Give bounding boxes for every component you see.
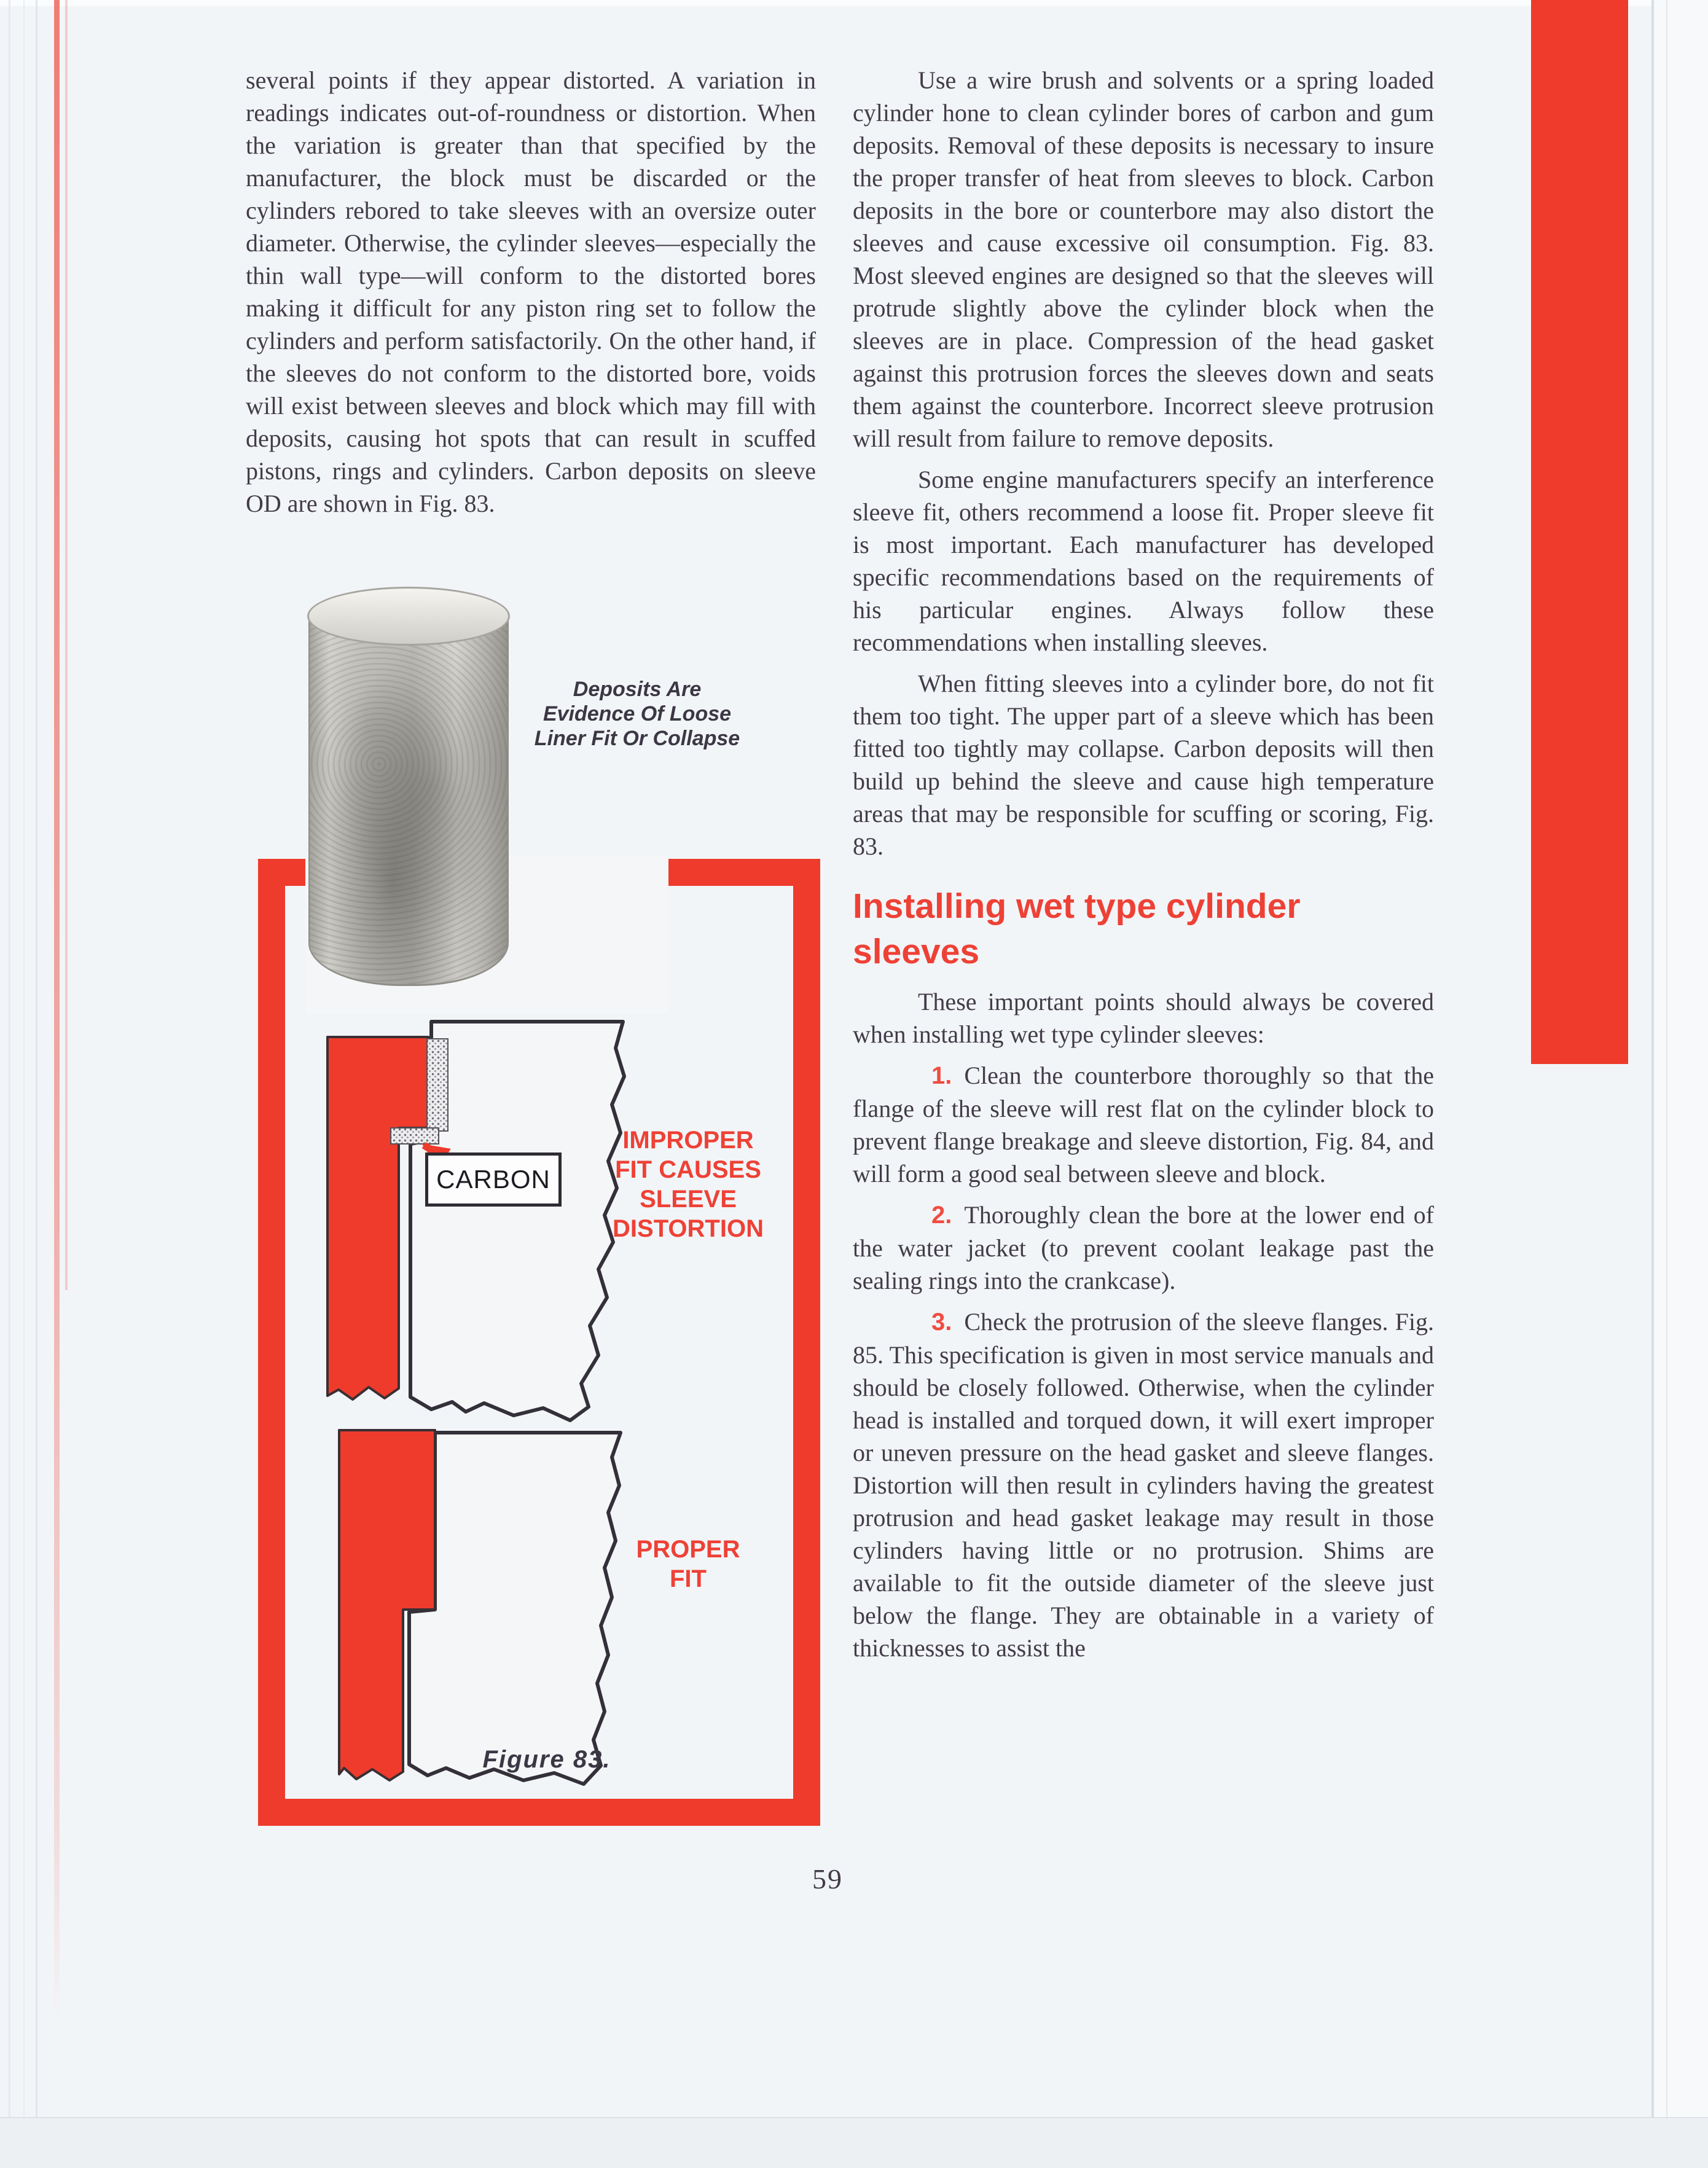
sleeve-fit-diagram <box>0 0 1708 2168</box>
photo-caption: Deposits Are Evidence Of Loose Liner Fit… <box>527 677 747 751</box>
proper-fit-label: PROPER FIT <box>627 1535 750 1594</box>
figure-caption: Figure 83. <box>430 1746 664 1774</box>
carbon-callout-box: CARBON <box>425 1152 562 1207</box>
cylinder-sleeve-photo <box>307 587 510 1012</box>
carbon-deposit-strip <box>427 1039 448 1131</box>
improper-fit-label: IMPROPER FIT CAUSES SLEEVE DISTORTION <box>605 1125 771 1243</box>
sleeve-photo-rim <box>307 587 510 646</box>
sleeve-photo-bore <box>319 596 498 638</box>
carbon-label: CARBON <box>436 1165 550 1194</box>
sleeve-photo-body <box>308 617 509 986</box>
proper-sleeve-outline <box>409 1433 621 1784</box>
carbon-deposit-ledge <box>391 1128 439 1144</box>
